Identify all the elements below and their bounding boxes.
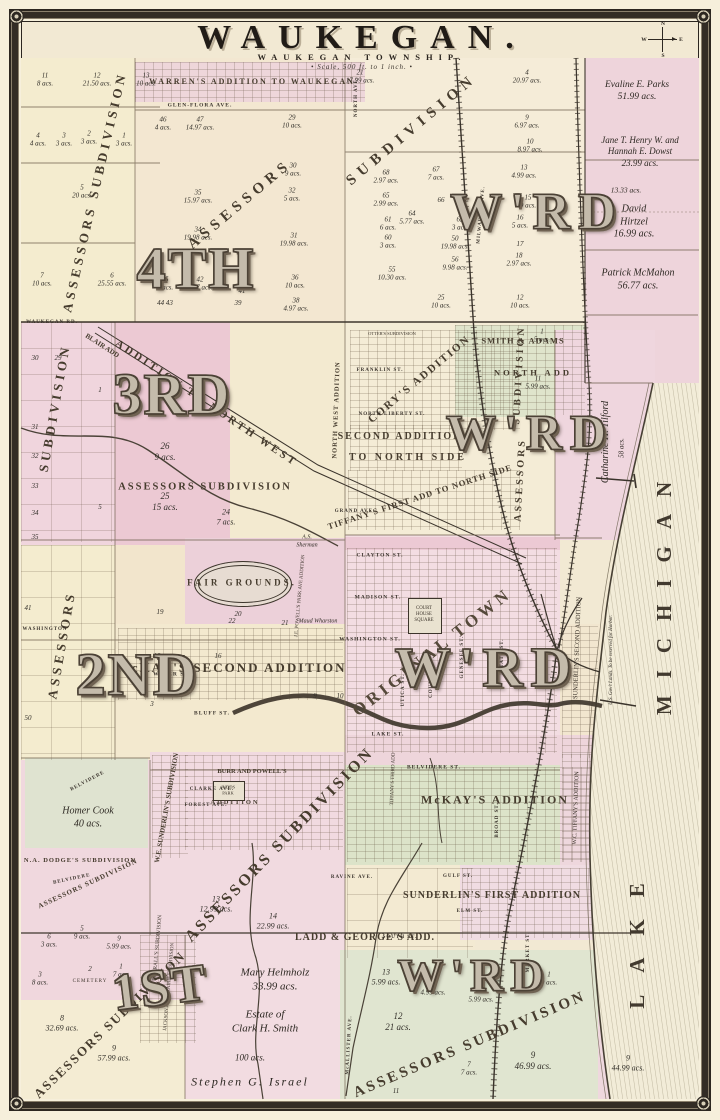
owner-wharston: Maud Wharston	[299, 618, 338, 626]
compass-w: W	[641, 37, 647, 43]
fair-grounds-label: FAIR GROUNDS.	[187, 577, 297, 588]
owner-israel-acres: 100 acs.	[235, 1052, 265, 1063]
addition-smith-adams: SMITH & ADAMS	[481, 336, 564, 347]
lot-label: 18 2.97 acs.	[506, 252, 531, 269]
lot-label: 12 21.50 acs.	[83, 72, 112, 89]
owner-parks: Evaline E. Parks 51.99 acs.	[605, 80, 669, 104]
lot-label: 32	[32, 452, 39, 460]
lot-label: 16	[215, 652, 222, 660]
lot-label: 2 3 acs.	[81, 130, 97, 147]
corner-rosette-icon	[9, 1096, 24, 1111]
lot-label: 24 7 acs.	[217, 507, 236, 526]
lot-label: 3 8 acs.	[32, 971, 48, 988]
lot-label: 67 7 acs.	[428, 166, 444, 183]
compass-s: S	[661, 53, 664, 59]
plat-ladd	[347, 868, 473, 958]
owner-helmholz: Mary Helmholz 33.99 acs.	[241, 966, 310, 994]
owner-cook: Homer Cook 40 acs.	[62, 806, 113, 831]
addition-otters: OTTER'S SUBDIVISION	[368, 331, 416, 337]
street-grand: GRAND AVE.	[335, 509, 375, 515]
street-madison: MADISON ST.	[355, 595, 402, 602]
lot-label: 31 19.98 acs.	[280, 232, 309, 249]
addition-judds-park: JUDDS PARK	[221, 784, 235, 795]
lot-label: 41	[25, 604, 32, 612]
lot-label: 34	[32, 509, 39, 517]
region-homer-cook	[25, 758, 148, 848]
street-south: SOUTH ST.	[383, 935, 418, 941]
lake-michigan-word1: LAKE	[624, 861, 650, 1009]
street-north-liberty: NORTH LIBERTY ST.	[359, 412, 426, 418]
lot-label: 32 5 acs.	[284, 187, 300, 204]
owner-dowst: Jane T. Henry W. and Hannah E. Dowst 23.…	[601, 135, 679, 169]
street-broad: BROAD ST.	[495, 802, 501, 837]
lot-label: 30 9 acs.	[285, 162, 301, 179]
lot-label: 6 3 acs.	[41, 933, 57, 950]
addition-second-north: SECOND ADDITION	[338, 431, 463, 444]
lot-label: 7 7 acs.	[461, 1061, 477, 1078]
ward-label-1st: 1ST	[109, 953, 211, 1023]
compass-n: N	[661, 21, 665, 27]
owner-tilford-acres: 58 acs.	[618, 438, 627, 458]
lot-label: 3 3 acs.	[56, 132, 72, 149]
ward-word-1st: W'RD	[397, 949, 550, 1002]
lot-label: 5 20 acs.	[72, 184, 92, 201]
owner-mcmahon: Patrick McMahon 56.77 acs.	[601, 268, 674, 293]
street-lake: LAKE ST.	[372, 732, 405, 739]
lot-label: 13 5.99 acs.	[372, 967, 401, 986]
street-clayton: CLAYTON ST.	[357, 553, 404, 560]
lot-label: 20	[235, 610, 242, 618]
ward-label-4th: 4TH	[137, 235, 256, 302]
lot-label: 46 4 acs.	[155, 116, 171, 133]
lot-label: 4 20.97 acs.	[513, 69, 542, 86]
plat-mckay	[347, 767, 593, 862]
lot-label: 5	[98, 503, 102, 511]
lot-label: 9 6.97 acs.	[514, 114, 539, 131]
scale-note: • Scale, 500 ft. to 1 inch. •	[311, 63, 413, 71]
ward-label-2nd: 2ND	[76, 641, 199, 710]
lot-label: 9 57.99 acs.	[98, 1043, 131, 1062]
lot-label: 68 2.97 acs.	[373, 169, 398, 186]
lot-label: 35 15.97 acs.	[184, 189, 213, 206]
owner-israel: Stephen G. Israel	[191, 1075, 309, 1090]
lot-label: 9	[313, 692, 317, 700]
lot-label: 9 44.99 acs.	[612, 1053, 645, 1072]
region-br-pink	[598, 995, 658, 1099]
lot-label: 47 14.97 acs.	[186, 116, 215, 133]
ward-label-3rd: 3RD	[113, 361, 232, 428]
lot-label: 65 2.99 acs.	[373, 192, 398, 209]
lot-label: 10	[337, 692, 344, 700]
township-subtitle: WAUKEGAN TOWNSHIP.	[258, 52, 467, 62]
owner-sherman: A.S. Sherman	[296, 535, 317, 550]
street-gulf: GULF ST.	[443, 874, 473, 880]
lot-label: 10 8.97 acs.	[517, 138, 542, 155]
court-house-square-label: COURT HOUSE SQUARE	[414, 606, 433, 624]
lot-label: 14 22.99 acs.	[257, 911, 290, 930]
lot-label: 11 8 acs.	[37, 72, 53, 89]
ward-word-4th: W'RD	[450, 183, 624, 242]
street-elm: ELM ST.	[457, 909, 484, 915]
ward-word-3rd: W'RD	[446, 403, 614, 461]
lot-label: 25 15 acs.	[152, 491, 178, 513]
lot-label: 60 3 acs.	[380, 234, 396, 251]
lot-label: 13 12.99 acs.	[200, 894, 233, 913]
lot-label: 61 6 acs.	[380, 216, 396, 233]
lot-label: 29	[55, 354, 62, 362]
lot-label: 12 21 acs.	[385, 1011, 411, 1033]
addition-sunderlins-first: SUNDERLIN'S FIRST ADDITION	[403, 890, 581, 903]
lot-label: 25 10 acs.	[431, 294, 451, 311]
lot-label: 66	[438, 196, 445, 204]
addition-na-dodges: N.A. DODGE'S SUBDIVISION	[24, 857, 136, 865]
lot-label: 29 10 acs.	[282, 114, 302, 131]
lot-label: 7 10 acs.	[32, 272, 52, 289]
plat-tiffany-first	[348, 470, 520, 530]
plat-sunderlin-first	[462, 868, 593, 938]
lot-label: 9 46.99 acs.	[515, 1050, 552, 1072]
lot-label: 64 5.77 acs.	[399, 210, 424, 227]
lot-label: 11 5.99 acs.	[525, 375, 550, 392]
lot-label: 33	[32, 482, 39, 490]
lot-label: 56 9.98 acs.	[442, 256, 467, 273]
lot-label: 36 10 acs.	[285, 274, 305, 291]
street-ravine: RAVINE AVE.	[331, 875, 373, 881]
lot-label: 31	[32, 423, 39, 431]
lot-label: 1 3 acs.	[116, 132, 132, 149]
street-belvidere: BELVIDERE ST.	[407, 765, 461, 772]
lot-label: 21	[282, 619, 289, 627]
street-washington: WASHINGTON ST.	[339, 637, 400, 644]
compass-east-arrow-icon	[672, 37, 676, 41]
ward-word-2nd: W'RD	[395, 636, 579, 700]
compass-e: E	[679, 37, 683, 43]
lot-label: 6 25.55 acs.	[98, 272, 127, 289]
lot-label: 1 5 acs.	[534, 328, 550, 345]
lot-label: 19	[157, 608, 164, 616]
lot-label: 22	[229, 617, 236, 625]
banner-assessors-mid: ASSESSORS SUBDIVISION	[118, 480, 292, 493]
lot-label: 50	[25, 714, 32, 722]
lot-label: 11	[393, 1087, 399, 1095]
corner-rosette-icon	[696, 9, 711, 24]
lot-label: 21 17.99 acs.	[346, 69, 375, 86]
lot-label: 8 32.69 acs.	[46, 1013, 79, 1032]
street-forest: FOREST AVE.	[184, 803, 227, 809]
street-washington-west: WASHINGTON	[23, 627, 68, 633]
corner-rosette-icon	[9, 9, 24, 24]
us-govt-lands-note: U.S. Gov't Lands. To be reserved for Har…	[609, 615, 615, 705]
lot-label: 12 10 acs.	[510, 294, 530, 311]
street-waukegan-rd: WAUKEGAN RD.	[26, 320, 78, 326]
lot-label: 4 4 acs.	[30, 132, 46, 149]
lot-label: 13 10 acs.	[136, 72, 156, 89]
street-bluff: BLUFF ST.	[194, 711, 230, 718]
street-franklin: FRANKLIN ST.	[357, 368, 404, 374]
lake-michigan-word2: MICHIGAN	[651, 465, 677, 715]
lot-label: 9 5.99 acs.	[106, 935, 131, 952]
waukegan-map: WAUKEGAN. WAUKEGAN TOWNSHIP. • Scale, 50…	[0, 0, 720, 1120]
owner-smith: Estate of Clark H. Smith	[232, 1008, 298, 1036]
lot-label: 55 10.30 acs.	[378, 266, 407, 283]
lot-label: 5 9 acs.	[74, 925, 90, 942]
lot-label: 1	[98, 386, 102, 394]
lot-label: 13 4.99 acs.	[511, 164, 536, 181]
lot-label: 30	[32, 354, 39, 362]
lot-label: 26 9 acs.	[155, 441, 176, 463]
lot-label: 35	[32, 533, 39, 541]
cemetery-label: CEMETERY	[73, 979, 108, 985]
corner-rosette-icon	[696, 1096, 711, 1111]
lot-label: 38 4.97 acs.	[283, 297, 308, 314]
street-glen-flora: GLEN-FLORA AVE.	[168, 103, 233, 110]
addition-burr-powells: BURR AND POWELL'S	[217, 768, 286, 776]
lot-label: 2	[88, 965, 92, 973]
addition-warrens: WARREN'S ADDITION TO WAUKEGAN	[149, 77, 355, 87]
